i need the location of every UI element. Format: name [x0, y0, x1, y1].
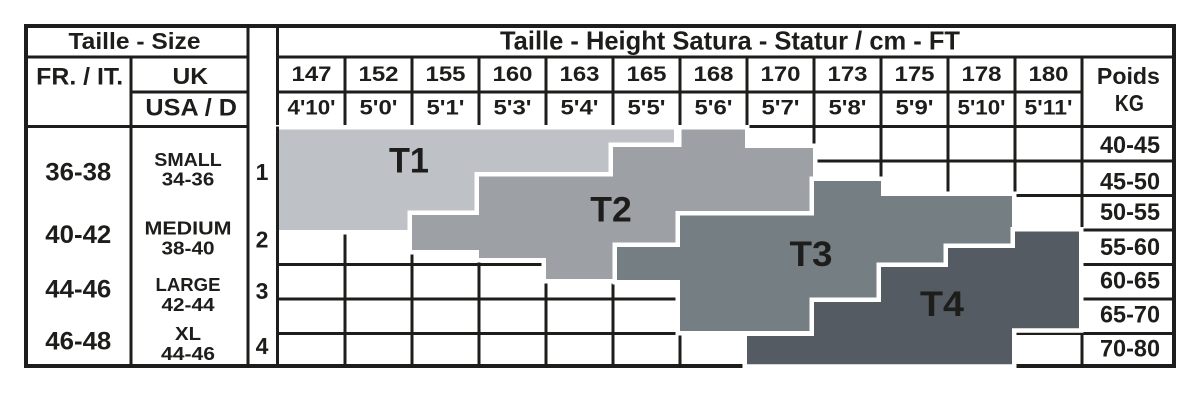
svg-text:Taille - Size: Taille - Size — [69, 28, 201, 54]
svg-text:UK: UK — [173, 63, 209, 89]
svg-text:USA / D: USA / D — [145, 95, 237, 122]
svg-text:70-80: 70-80 — [1100, 335, 1160, 362]
svg-text:46-48: 46-48 — [45, 328, 111, 356]
svg-text:152: 152 — [359, 62, 399, 86]
svg-text:4'10': 4'10' — [288, 96, 336, 120]
svg-text:50-55: 50-55 — [1100, 199, 1160, 226]
svg-text:T3: T3 — [790, 235, 833, 274]
svg-text:45-50: 45-50 — [1100, 168, 1160, 195]
svg-text:5'5': 5'5' — [628, 96, 666, 120]
svg-text:5'7': 5'7' — [762, 96, 800, 120]
svg-text:170: 170 — [761, 62, 801, 86]
svg-text:42-44: 42-44 — [162, 294, 216, 315]
svg-text:2: 2 — [256, 227, 269, 253]
svg-text:MEDIUM: MEDIUM — [145, 218, 232, 239]
svg-text:65-70: 65-70 — [1100, 302, 1160, 329]
svg-text:163: 163 — [560, 62, 600, 86]
svg-text:180: 180 — [1029, 62, 1069, 86]
svg-text:147: 147 — [292, 62, 332, 86]
svg-text:T1: T1 — [389, 142, 429, 181]
svg-text:KG: KG — [1115, 90, 1144, 116]
svg-text:FR. / IT.: FR. / IT. — [36, 64, 123, 91]
svg-text:40-42: 40-42 — [45, 221, 111, 249]
svg-text:173: 173 — [828, 62, 868, 86]
svg-text:155: 155 — [426, 62, 466, 86]
svg-text:36-38: 36-38 — [45, 159, 111, 187]
svg-text:175: 175 — [895, 62, 935, 86]
svg-text:XL: XL — [175, 323, 201, 344]
svg-text:160: 160 — [493, 62, 533, 86]
svg-text:44-46: 44-46 — [45, 276, 111, 304]
svg-text:5'9': 5'9' — [896, 96, 934, 120]
svg-text:LARGE: LARGE — [156, 274, 221, 295]
svg-text:4: 4 — [256, 333, 269, 359]
svg-text:55-60: 55-60 — [1100, 234, 1160, 261]
svg-text:165: 165 — [627, 62, 667, 86]
svg-text:40-45: 40-45 — [1100, 132, 1160, 159]
svg-text:38-40: 38-40 — [162, 238, 215, 259]
svg-text:5'0': 5'0' — [360, 96, 398, 120]
svg-text:T4: T4 — [920, 285, 965, 324]
svg-text:5'8': 5'8' — [829, 96, 867, 120]
svg-text:Taille - Height Satura - Statu: Taille - Height Satura - Statur / cm - F… — [500, 26, 960, 56]
svg-text:5'10': 5'10' — [958, 96, 1006, 120]
svg-text:5'3': 5'3' — [494, 96, 532, 120]
svg-text:5'11': 5'11' — [1025, 96, 1073, 120]
svg-text:Poids: Poids — [1097, 63, 1160, 89]
svg-text:3: 3 — [256, 278, 269, 304]
svg-text:5'4': 5'4' — [561, 96, 599, 120]
svg-text:60-65: 60-65 — [1100, 268, 1160, 295]
svg-text:T2: T2 — [590, 191, 632, 230]
svg-text:5'1': 5'1' — [427, 96, 465, 120]
svg-text:SMALL: SMALL — [154, 149, 222, 170]
svg-text:5'6': 5'6' — [695, 96, 733, 120]
svg-text:178: 178 — [962, 62, 1002, 86]
svg-text:1: 1 — [256, 159, 269, 185]
svg-text:44-46: 44-46 — [161, 343, 215, 364]
svg-text:34-36: 34-36 — [162, 169, 215, 190]
svg-text:168: 168 — [694, 62, 734, 86]
